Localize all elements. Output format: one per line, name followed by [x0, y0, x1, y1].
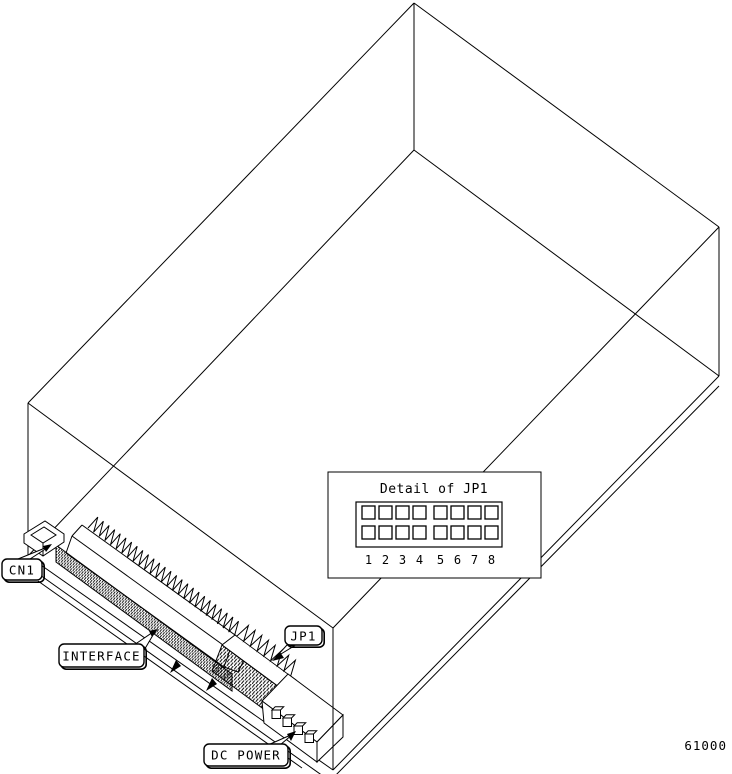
dc-power-label: DC POWER [211, 748, 281, 763]
dc-pin [294, 726, 303, 735]
pin1-arrow-icon [206, 678, 217, 691]
callout-interface: INTERFACE [59, 629, 158, 669]
figure-number: 61000 [684, 738, 727, 753]
jp1-label: JP1 [290, 629, 316, 644]
detail-box-title: Detail of JP1 [380, 482, 488, 497]
jp1-pin-number: 7 [471, 553, 478, 567]
jp1-detail-box: Detail of JP1 12345678 [328, 472, 541, 578]
diagram-page: Detail of JP1 12345678 CN1 INTERFACE JP1… [0, 0, 732, 774]
dc-pin [272, 710, 281, 719]
jp1-pin-number: 6 [454, 553, 461, 567]
jp1-pin-number: 1 [365, 553, 372, 567]
jp1-pin-number: 3 [399, 553, 406, 567]
cn1-label: CN1 [9, 563, 35, 578]
interface-pin-teeth [88, 517, 239, 636]
jp1-pin-number: 8 [488, 553, 495, 567]
callout-cn1: CN1 [2, 544, 52, 582]
dc-pin [305, 734, 314, 743]
dc-pin [283, 718, 292, 727]
interface-label: INTERFACE [62, 649, 141, 664]
jp1-pin-number: 2 [382, 553, 389, 567]
jp1-pin-number: 5 [437, 553, 444, 567]
technical-diagram: Detail of JP1 12345678 CN1 INTERFACE JP1… [0, 0, 732, 774]
callout-jp1: JP1 [272, 626, 324, 661]
jp1-pin-number: 4 [416, 553, 423, 567]
